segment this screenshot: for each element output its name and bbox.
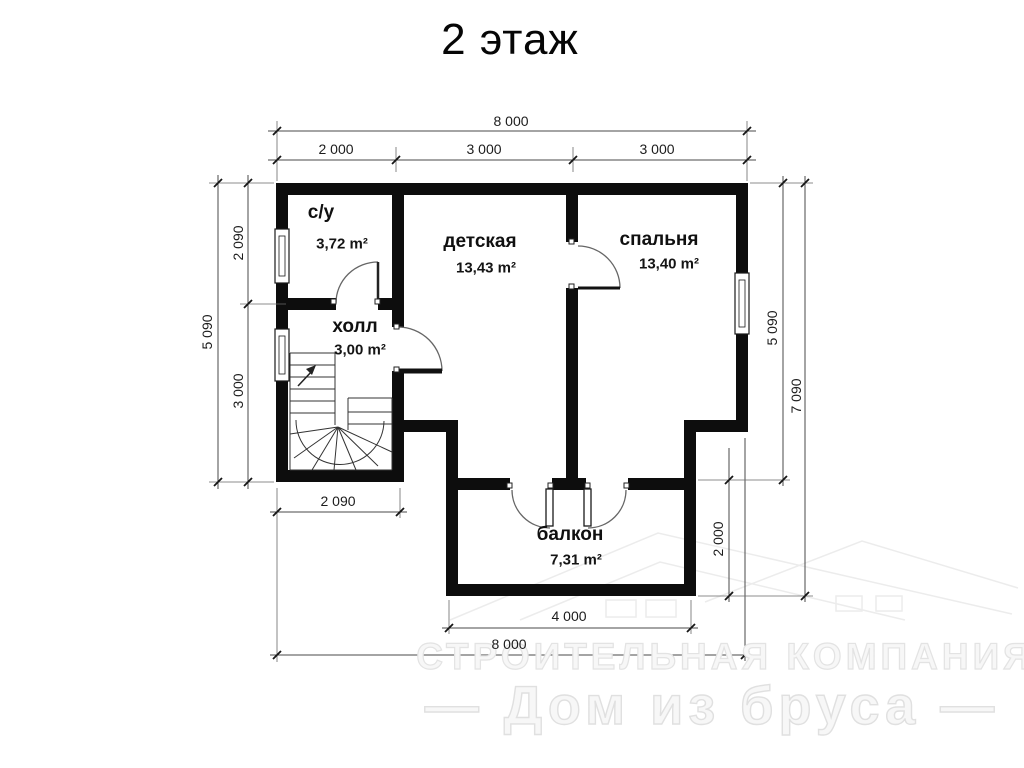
- room-area-spalnya: 13,40 m²: [639, 256, 699, 273]
- dim-right-total: 7 090: [788, 378, 804, 413]
- dim-left-seg1: 2 090: [230, 225, 246, 260]
- door-hall: [398, 327, 442, 371]
- room-label-spalnya: спальня: [620, 229, 699, 251]
- staircase: [290, 353, 392, 470]
- door-bedroom: [578, 246, 620, 288]
- room-area-balkon: 7,31 m²: [550, 552, 602, 569]
- dim-top-total: 8 000: [493, 113, 528, 129]
- dim-bottom-balcony: 4 000: [551, 608, 586, 624]
- door-balcony-right: [584, 489, 626, 528]
- door-su: [336, 262, 378, 303]
- room-label-su: с/у: [308, 202, 334, 224]
- window-left-su: [275, 229, 289, 283]
- dimension-lines: [209, 121, 813, 662]
- room-label-detskaya: детская: [443, 231, 516, 253]
- dim-top-seg2: 3 000: [466, 141, 501, 157]
- room-area-su: 3,72 m²: [316, 236, 368, 253]
- dim-left-seg2: 3 000: [230, 373, 246, 408]
- dim-right-main: 5 090: [764, 310, 780, 345]
- room-area-detskaya: 13,43 m²: [456, 260, 516, 277]
- dim-bottom-stairs: 2 090: [320, 493, 355, 509]
- door-balcony-left: [512, 489, 553, 528]
- room-label-holl: холл: [332, 316, 377, 338]
- floor-plan-page: СТРОИТЕЛЬНАЯ КОМПАНИЯ — Дом из бруса — 2…: [0, 0, 1024, 768]
- page-title: 2 этаж: [441, 15, 579, 65]
- dim-right-balcony: 2 000: [710, 521, 726, 556]
- watermark-roofline: [450, 533, 1018, 620]
- dim-top-seg1: 2 000: [318, 141, 353, 157]
- stair-direction-arrow: [298, 365, 316, 386]
- window-left-hall: [275, 329, 289, 381]
- window-right-bedroom: [735, 273, 749, 334]
- dim-top-seg3: 3 000: [639, 141, 674, 157]
- watermark-brand-line: — Дом из бруса —: [425, 675, 999, 737]
- room-area-holl: 3,00 m²: [334, 342, 386, 359]
- room-label-balkon: балкон: [537, 524, 604, 546]
- dim-bottom-total: 8 000: [491, 636, 526, 652]
- dimension-ticks: [214, 127, 809, 659]
- dim-left-total: 5 090: [199, 314, 215, 349]
